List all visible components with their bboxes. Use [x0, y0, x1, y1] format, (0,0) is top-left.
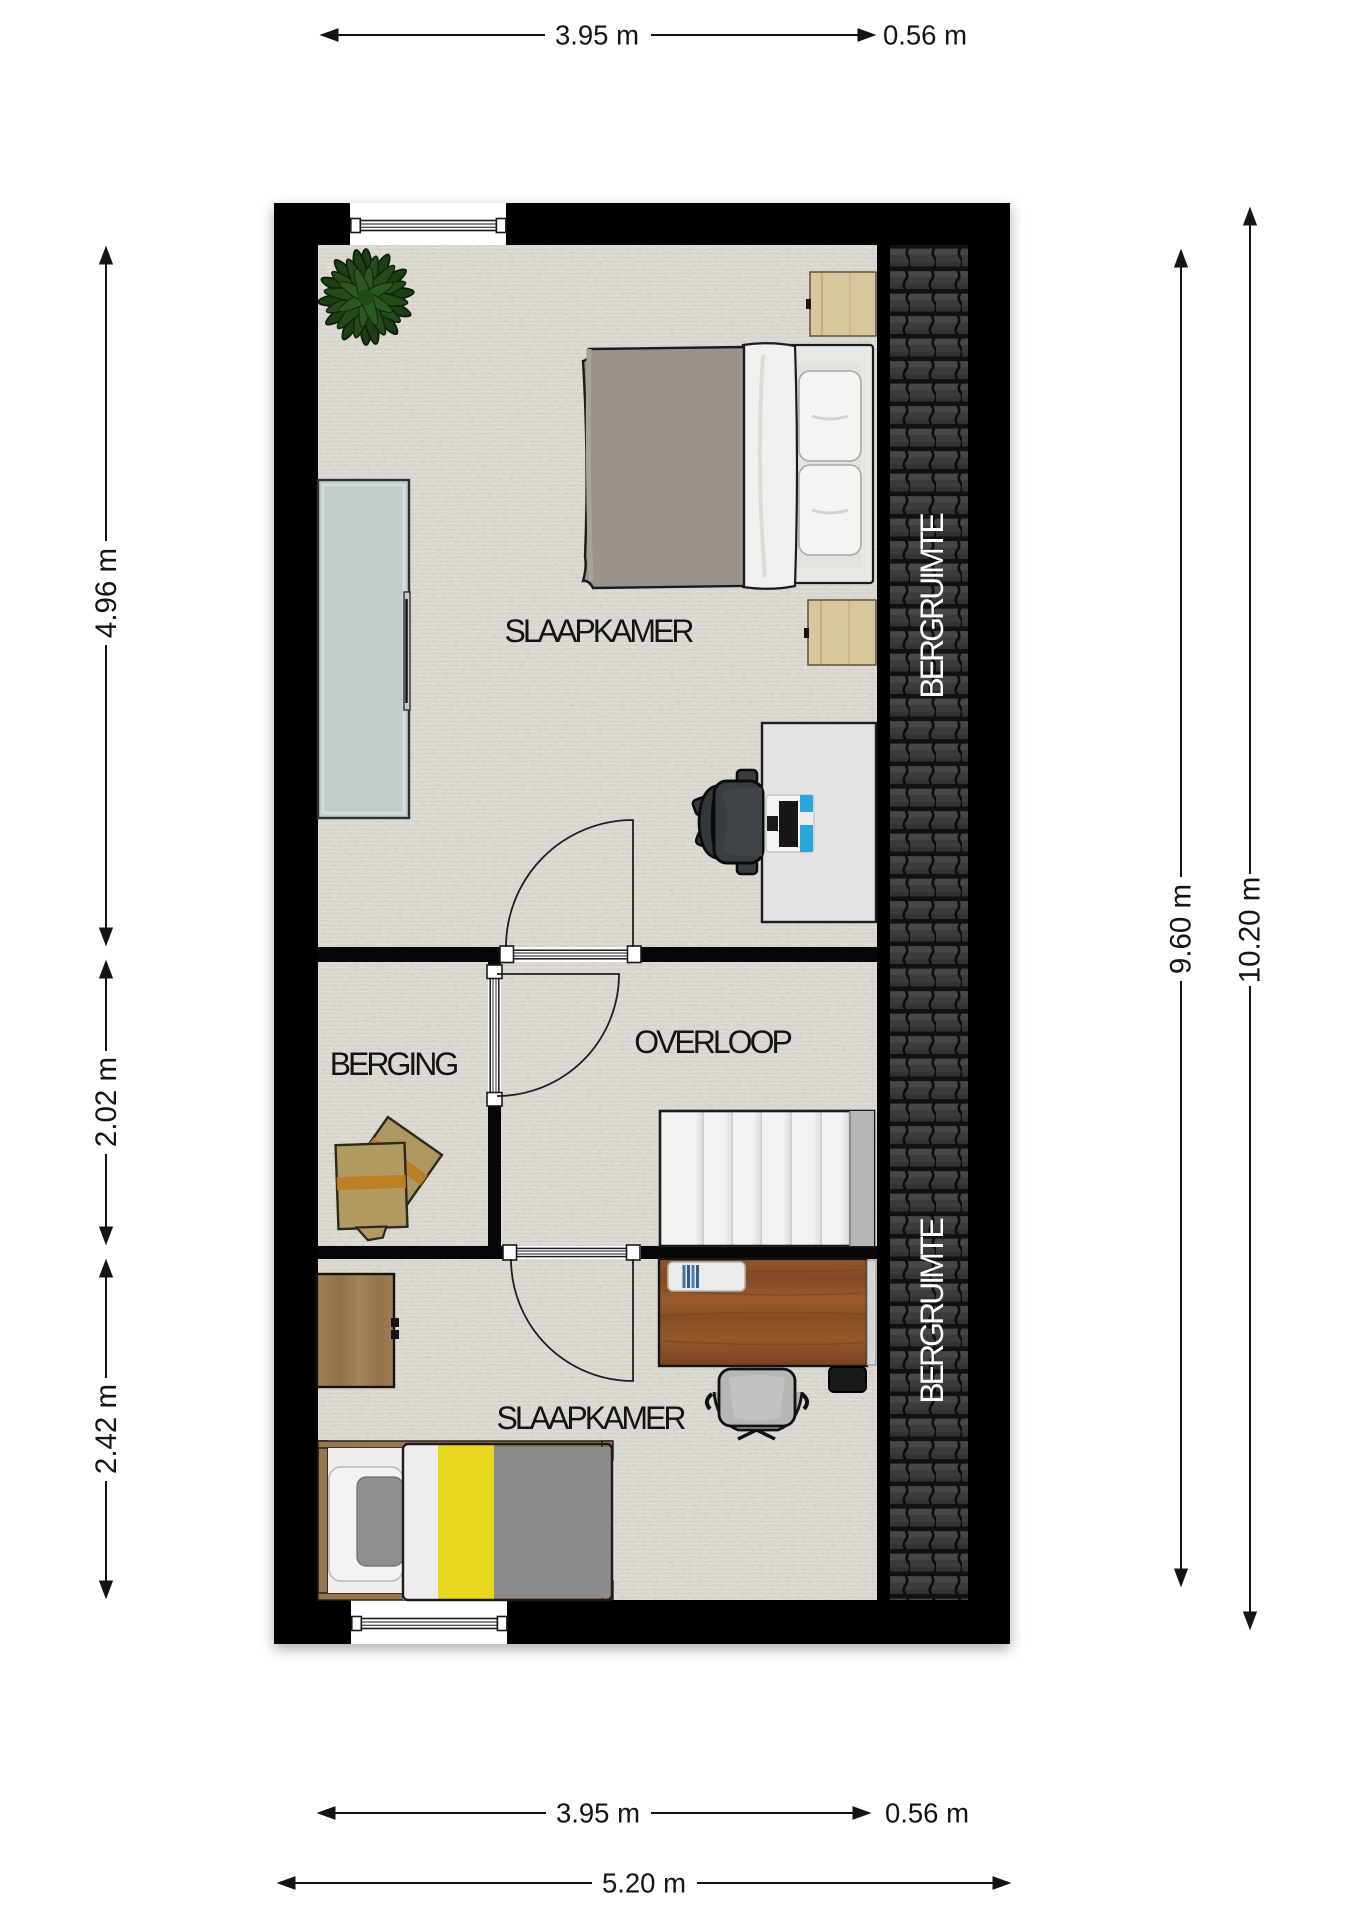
svg-text:SLAAPKAMER: SLAAPKAMER [505, 613, 694, 649]
svg-text:BERGRUIMTE: BERGRUIMTE [914, 514, 950, 699]
svg-text:0.56 m: 0.56 m [883, 20, 967, 51]
svg-text:5.20 m: 5.20 m [602, 1868, 686, 1899]
svg-text:10.20 m: 10.20 m [1234, 877, 1267, 984]
svg-text:BERGRUIMTE: BERGRUIMTE [914, 1219, 950, 1404]
svg-text:SLAAPKAMER: SLAAPKAMER [497, 1400, 686, 1436]
svg-text:9.60 m: 9.60 m [1165, 884, 1198, 974]
svg-text:BERGING: BERGING [330, 1046, 458, 1082]
svg-text:OVERLOOP: OVERLOOP [634, 1024, 791, 1060]
svg-text:2.42 m: 2.42 m [90, 1384, 123, 1474]
svg-text:3.95 m: 3.95 m [556, 1798, 640, 1829]
svg-text:3.95 m: 3.95 m [555, 20, 639, 51]
svg-text:2.02 m: 2.02 m [90, 1057, 123, 1147]
svg-text:4.96 m: 4.96 m [90, 548, 123, 638]
svg-text:0.56 m: 0.56 m [885, 1798, 969, 1829]
